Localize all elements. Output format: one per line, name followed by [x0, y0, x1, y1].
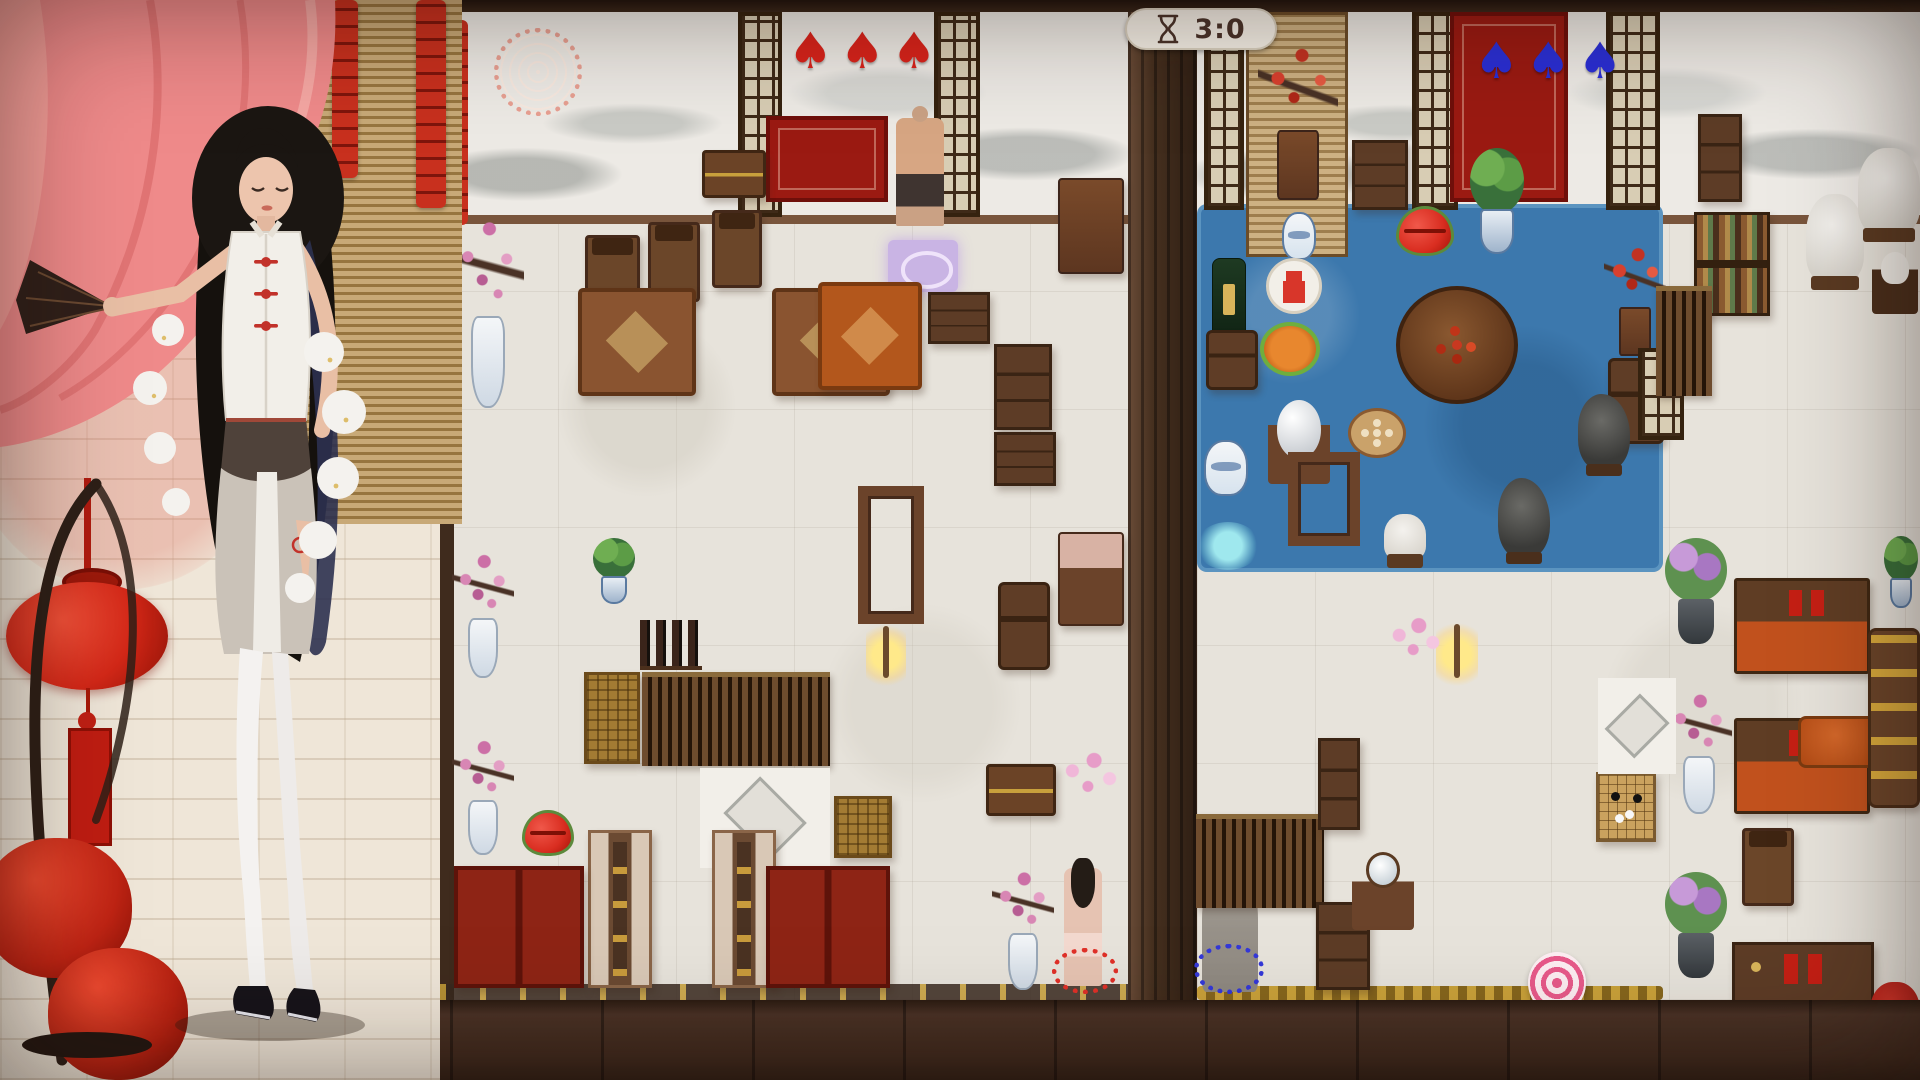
round-table-food[interactable] [1396, 286, 1518, 404]
purple-plant-1[interactable] [1662, 538, 1730, 644]
cabinet-top-right[interactable] [1698, 114, 1742, 202]
lips-left[interactable] [522, 810, 574, 856]
firecracker-string [416, 0, 446, 208]
cabinet-small-top[interactable] [1352, 140, 1408, 210]
plum-cabinet[interactable] [992, 866, 1054, 990]
white-vase[interactable] [1282, 212, 1316, 260]
hostess-character [0, 0, 460, 1080]
lips-right[interactable] [1396, 206, 1454, 256]
mooncake-plate[interactable] [1260, 322, 1320, 376]
gold-cabinet-2[interactable] [834, 796, 892, 858]
plum-vase-1[interactable] [452, 208, 524, 408]
left-decor-panel [0, 0, 440, 1080]
gold-cabinet-1[interactable] [584, 672, 640, 764]
diamond-floor-right[interactable] [1598, 678, 1676, 774]
lamp-left[interactable] [866, 618, 906, 686]
cabinet-2[interactable] [994, 432, 1056, 486]
petal-ring-blue[interactable] [1194, 944, 1264, 994]
wood-chest-2[interactable] [986, 764, 1056, 816]
side-table-top[interactable] [1058, 178, 1124, 274]
armchair-1[interactable] [578, 288, 696, 396]
folding-fan-icon [16, 260, 121, 334]
plum-vase-3[interactable] [452, 735, 514, 855]
petal-ring-red[interactable] [1052, 948, 1118, 994]
mirror-table[interactable] [1352, 852, 1414, 930]
storage-chest[interactable] [702, 150, 766, 198]
splash-cyan[interactable] [1196, 522, 1260, 570]
teapot-table[interactable] [1872, 252, 1918, 314]
game-scene: ♠♠♠ ♠♠♠ 3:0 [0, 0, 1920, 1080]
man-figure[interactable] [896, 118, 944, 226]
abacus-screen[interactable] [1196, 814, 1324, 908]
plum-branch-red[interactable] [1258, 40, 1338, 200]
plum-vase-2[interactable] [452, 548, 514, 678]
horse-statue[interactable] [1806, 194, 1864, 282]
gourd-medal[interactable] [1266, 258, 1322, 314]
shelf-bottom[interactable] [1732, 942, 1874, 1004]
petals-pink-left[interactable] [1060, 750, 1122, 802]
lattice-door-5[interactable] [1606, 12, 1660, 210]
champagne-table[interactable] [1206, 330, 1258, 390]
bamboo-pot[interactable] [590, 538, 638, 604]
rock-sculpture[interactable] [1498, 478, 1550, 558]
screen-wide[interactable] [642, 672, 830, 766]
tall-chair-3[interactable] [712, 210, 762, 288]
plant-pot[interactable] [1466, 148, 1528, 254]
bed-1[interactable] [588, 830, 652, 988]
cabinet-1[interactable] [994, 344, 1052, 430]
frame-table-1[interactable] [858, 486, 924, 624]
bamboo-top-right[interactable] [1882, 536, 1920, 608]
daybed-1[interactable] [1734, 578, 1870, 674]
cabinet-right-1[interactable] [1318, 738, 1360, 830]
orange-armchair[interactable] [818, 282, 922, 390]
red-rug-top[interactable] [766, 116, 888, 202]
white-armchair[interactable] [1858, 148, 1920, 234]
horse-small[interactable] [1384, 514, 1426, 560]
tall-chair-4[interactable] [1742, 828, 1794, 906]
lattice-door-3[interactable] [1204, 12, 1244, 210]
stool-1[interactable] [998, 582, 1050, 670]
dimsum-plate[interactable] [1348, 408, 1406, 458]
desk-1[interactable] [928, 292, 990, 344]
wine-bottles[interactable] [640, 620, 702, 670]
red-cabinet-2[interactable] [766, 866, 890, 988]
frame-table-3[interactable] [1288, 452, 1360, 546]
red-cabinet-1[interactable] [454, 866, 584, 988]
petals-pink-right[interactable] [1388, 616, 1444, 664]
pink-table[interactable] [1058, 532, 1124, 626]
go-board[interactable] [1596, 772, 1656, 842]
red-medallion[interactable] [494, 28, 582, 116]
jar-blue[interactable] [1204, 440, 1248, 496]
screen-stripes-right[interactable] [1656, 286, 1712, 396]
couch-yellow[interactable] [1868, 628, 1920, 808]
purple-plant-2[interactable] [1662, 872, 1730, 978]
